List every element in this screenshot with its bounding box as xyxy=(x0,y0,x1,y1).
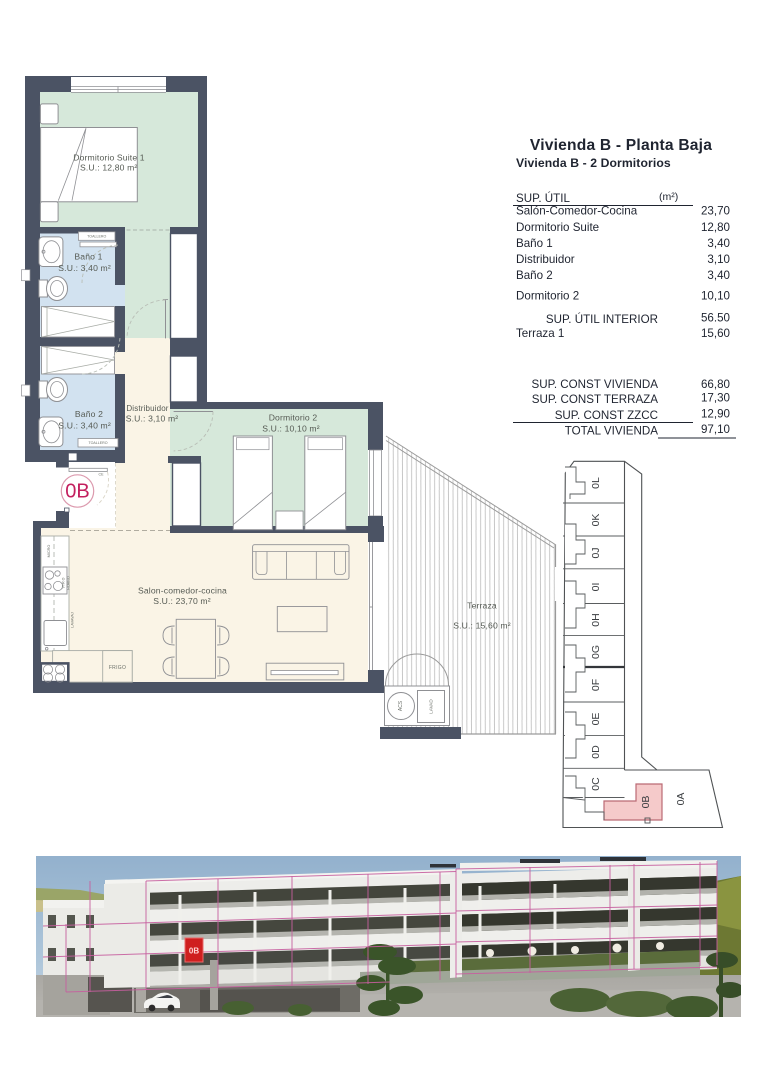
svg-text:3,40: 3,40 xyxy=(707,269,730,282)
svg-text:SUP. CONST VIVIENDA: SUP. CONST VIVIENDA xyxy=(532,378,659,391)
svg-text:0B: 0B xyxy=(189,947,199,956)
svg-text:S.U.: 12,80 m²: S.U.: 12,80 m² xyxy=(80,162,138,172)
svg-text:0I: 0I xyxy=(590,583,602,592)
svg-text:FRIGO: FRIGO xyxy=(109,665,126,671)
svg-text:S.U.: 3,10 m²: S.U.: 3,10 m² xyxy=(126,414,179,424)
svg-text:0B: 0B xyxy=(640,796,652,809)
svg-text:LAVAVAJ: LAVAVAJ xyxy=(71,612,75,628)
svg-text:Baño 1: Baño 1 xyxy=(516,237,553,250)
svg-text:Baño 2: Baño 2 xyxy=(75,409,103,419)
svg-text:0K: 0K xyxy=(590,514,602,527)
svg-text:0D: 0D xyxy=(590,745,602,759)
svg-text:LAVAD: LAVAD xyxy=(429,699,434,714)
svg-text:Terraza 1: Terraza 1 xyxy=(516,327,564,340)
svg-text:TOTAL VIVIENDA: TOTAL VIVIENDA xyxy=(565,425,658,438)
svg-text:Salón-Comedor-Cocina: Salón-Comedor-Cocina xyxy=(516,205,638,218)
svg-text:Vivienda B - 2 Dormitorios: Vivienda B - 2 Dormitorios xyxy=(516,156,671,170)
svg-text:CE: CE xyxy=(99,473,105,477)
svg-text:Distribuidor: Distribuidor xyxy=(516,253,575,266)
svg-text:Dormitorio 2: Dormitorio 2 xyxy=(269,412,318,422)
svg-text:17,30: 17,30 xyxy=(701,392,730,405)
svg-text:Baño 1: Baño 1 xyxy=(74,252,102,262)
svg-text:0L: 0L xyxy=(590,477,602,489)
svg-text:12,90: 12,90 xyxy=(701,408,730,421)
svg-text:Baño 2: Baño 2 xyxy=(516,269,553,282)
svg-text:0H: 0H xyxy=(590,613,602,626)
svg-text:15,60: 15,60 xyxy=(701,327,730,340)
svg-text:12,80: 12,80 xyxy=(701,221,730,234)
svg-text:VTR O: VTR O xyxy=(62,577,66,588)
svg-text:56.50: 56.50 xyxy=(701,311,730,324)
svg-text:SUP. CONST TERRAZA: SUP. CONST TERRAZA xyxy=(532,393,659,406)
svg-text:S.U.: 3,40 m²: S.U.: 3,40 m² xyxy=(58,263,111,273)
svg-text:SUP. ÚTIL: SUP. ÚTIL xyxy=(516,192,570,205)
svg-text:S.U.: 23,70 m²: S.U.: 23,70 m² xyxy=(153,596,211,606)
svg-text:0C: 0C xyxy=(590,777,602,791)
svg-text:S.U.: 10,10 m²: S.U.: 10,10 m² xyxy=(262,424,320,434)
svg-text:3,40: 3,40 xyxy=(707,237,730,250)
svg-text:23,70: 23,70 xyxy=(701,205,730,218)
svg-text:Dormitorio Suite 1: Dormitorio Suite 1 xyxy=(73,153,145,163)
svg-text:66,80: 66,80 xyxy=(701,378,730,391)
svg-text:S.U.: 15,60 m²: S.U.: 15,60 m² xyxy=(453,621,511,631)
svg-text:Vivienda B - Planta Baja: Vivienda B - Planta Baja xyxy=(530,137,712,154)
svg-text:TOALLERO: TOALLERO xyxy=(88,441,107,445)
svg-text:0A: 0A xyxy=(675,793,687,806)
svg-text:Terraza: Terraza xyxy=(467,601,497,611)
svg-text:0G: 0G xyxy=(590,645,602,659)
svg-text:Dormitorio Suite: Dormitorio Suite xyxy=(516,221,599,234)
svg-text:97,10: 97,10 xyxy=(701,423,730,436)
svg-text:SUP. CONST ZZCC: SUP. CONST ZZCC xyxy=(555,409,658,422)
svg-text:ACS: ACS xyxy=(398,700,404,711)
svg-text:Dormitorio 2: Dormitorio 2 xyxy=(516,289,579,302)
svg-text:0E: 0E xyxy=(590,713,602,726)
svg-text:(m²): (m²) xyxy=(659,191,678,203)
svg-text:0J: 0J xyxy=(590,547,602,558)
svg-text:Distribuidor: Distribuidor xyxy=(126,404,168,413)
svg-text:S.U.: 3,40 m²: S.U.: 3,40 m² xyxy=(58,421,111,431)
svg-text:0B: 0B xyxy=(65,481,89,503)
svg-text:Salon-comedor-cocina: Salon-comedor-cocina xyxy=(138,586,227,596)
svg-text:HORNO: HORNO xyxy=(67,576,71,590)
svg-text:MICRO: MICRO xyxy=(47,545,51,558)
svg-text:TOALLERO: TOALLERO xyxy=(87,235,106,239)
svg-text:3,10: 3,10 xyxy=(707,253,730,266)
svg-text:10,10: 10,10 xyxy=(701,289,730,302)
svg-text:0F: 0F xyxy=(590,679,602,691)
svg-text:SUP. ÚTIL INTERIOR: SUP. ÚTIL INTERIOR xyxy=(546,313,658,326)
